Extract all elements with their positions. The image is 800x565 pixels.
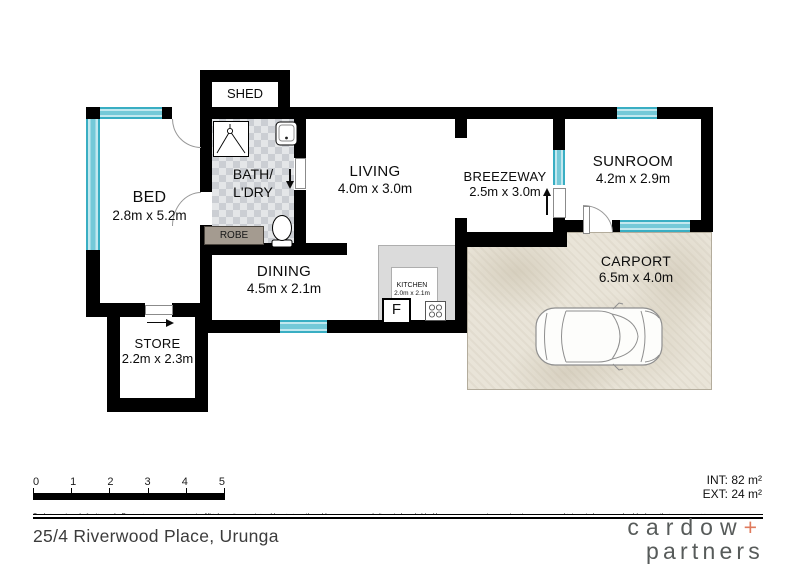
room-name: L'DRY: [212, 184, 294, 202]
fridge-box: F: [382, 298, 411, 324]
room-name: DINING: [210, 263, 358, 281]
room-name: CARPORT: [568, 253, 704, 270]
room-name: KITCHEN: [388, 281, 436, 290]
wall: [162, 107, 172, 119]
room-name: BATH/: [212, 166, 294, 184]
room-label-dining: DINING 4.5m x 2.1m: [210, 263, 358, 297]
scale-bar-numbers: 0 1 2 3 4 5: [33, 476, 225, 488]
window: [617, 107, 657, 119]
window: [86, 119, 100, 250]
scale-bar: [33, 493, 225, 500]
room-dims: 2.2m x 2.3m: [115, 351, 200, 366]
door-direction-arrow: [289, 169, 291, 181]
room-name: STORE: [115, 336, 200, 351]
cooktop-icon: [425, 301, 446, 321]
laundry-tub-icon: [275, 121, 298, 146]
window: [620, 220, 690, 232]
logo-word-partners: partners: [646, 538, 764, 564]
door-direction-arrow: [546, 196, 548, 215]
floorplan-page: ROBE F SHED BE: [0, 0, 800, 565]
room-label-living: LIVING 4.0m x 3.0m: [300, 163, 450, 197]
door-direction-arrow: [286, 181, 294, 189]
toilet-icon: [268, 214, 296, 248]
scale-tick-label: 5: [219, 476, 225, 488]
room-label-kitchen: KITCHEN 2.0m x 2.1m: [388, 281, 436, 299]
scale-tick-label: 0: [33, 476, 39, 488]
scale-tick-label: 3: [145, 476, 151, 488]
room-name: BED: [92, 189, 207, 208]
robe-label: ROBE: [220, 230, 248, 241]
window: [280, 320, 327, 333]
room-dims: 4.0m x 3.0m: [300, 181, 450, 197]
robe-cabinet: ROBE: [204, 226, 264, 245]
scale-tick-label: 2: [107, 476, 113, 488]
sliding-door: [145, 305, 173, 315]
room-label-sunroom: SUNROOM 4.2m x 2.9m: [563, 153, 703, 187]
scale-tick-label: 4: [182, 476, 188, 488]
fridge-label: F: [392, 301, 401, 318]
room-dims: 2.0m x 2.1m: [388, 290, 436, 298]
logo-line-2: partners: [627, 539, 764, 563]
wall: [455, 119, 467, 138]
wall: [455, 232, 567, 247]
room-label-store: STORE 2.2m x 2.3m: [115, 336, 200, 367]
shower-icon: [213, 121, 249, 157]
room-name: LIVING: [300, 163, 450, 181]
room-name: SHED: [210, 86, 280, 101]
room-label-carport: CARPORT 6.5m x 4.0m: [568, 253, 704, 285]
external-area: EXT: 24 m²: [703, 488, 762, 502]
wall: [86, 303, 145, 317]
wall: [553, 220, 583, 232]
agency-logo: cardow+ partners: [627, 515, 764, 563]
property-address: 25/4 Riverwood Place, Urunga: [33, 526, 279, 547]
logo-word-cardow: cardow: [627, 514, 743, 540]
room-dims: 4.5m x 2.1m: [210, 281, 358, 297]
room-label-shed: SHED: [210, 86, 280, 101]
door-leaf: [583, 206, 590, 234]
wall-shed: [200, 70, 290, 82]
wall: [200, 107, 212, 192]
door-arc: [172, 119, 201, 148]
room-label-bath: BATH/ L'DRY: [212, 166, 294, 201]
door-direction-arrow: [147, 322, 167, 323]
room-label-bed: BED 2.8m x 5.2m: [92, 189, 207, 224]
room-name: SUNROOM: [563, 153, 703, 171]
wall: [553, 107, 565, 150]
door-direction-arrow: [166, 319, 174, 327]
room-name: BREEZEWAY: [452, 169, 558, 184]
scale-tick-label: 1: [70, 476, 76, 488]
car-icon: [533, 302, 665, 371]
room-dims: 4.2m x 2.9m: [563, 171, 703, 187]
area-summary: INT: 82 m² EXT: 24 m²: [703, 474, 762, 501]
room-dims: 6.5m x 4.0m: [568, 270, 704, 286]
window: [100, 107, 162, 119]
logo-line-1: cardow+: [627, 515, 764, 539]
room-dims: 2.8m x 5.2m: [92, 208, 207, 224]
door-direction-arrow: [543, 188, 551, 196]
internal-area: INT: 82 m²: [703, 474, 762, 488]
logo-plus-icon: +: [744, 514, 764, 540]
wall-store: [107, 398, 208, 412]
